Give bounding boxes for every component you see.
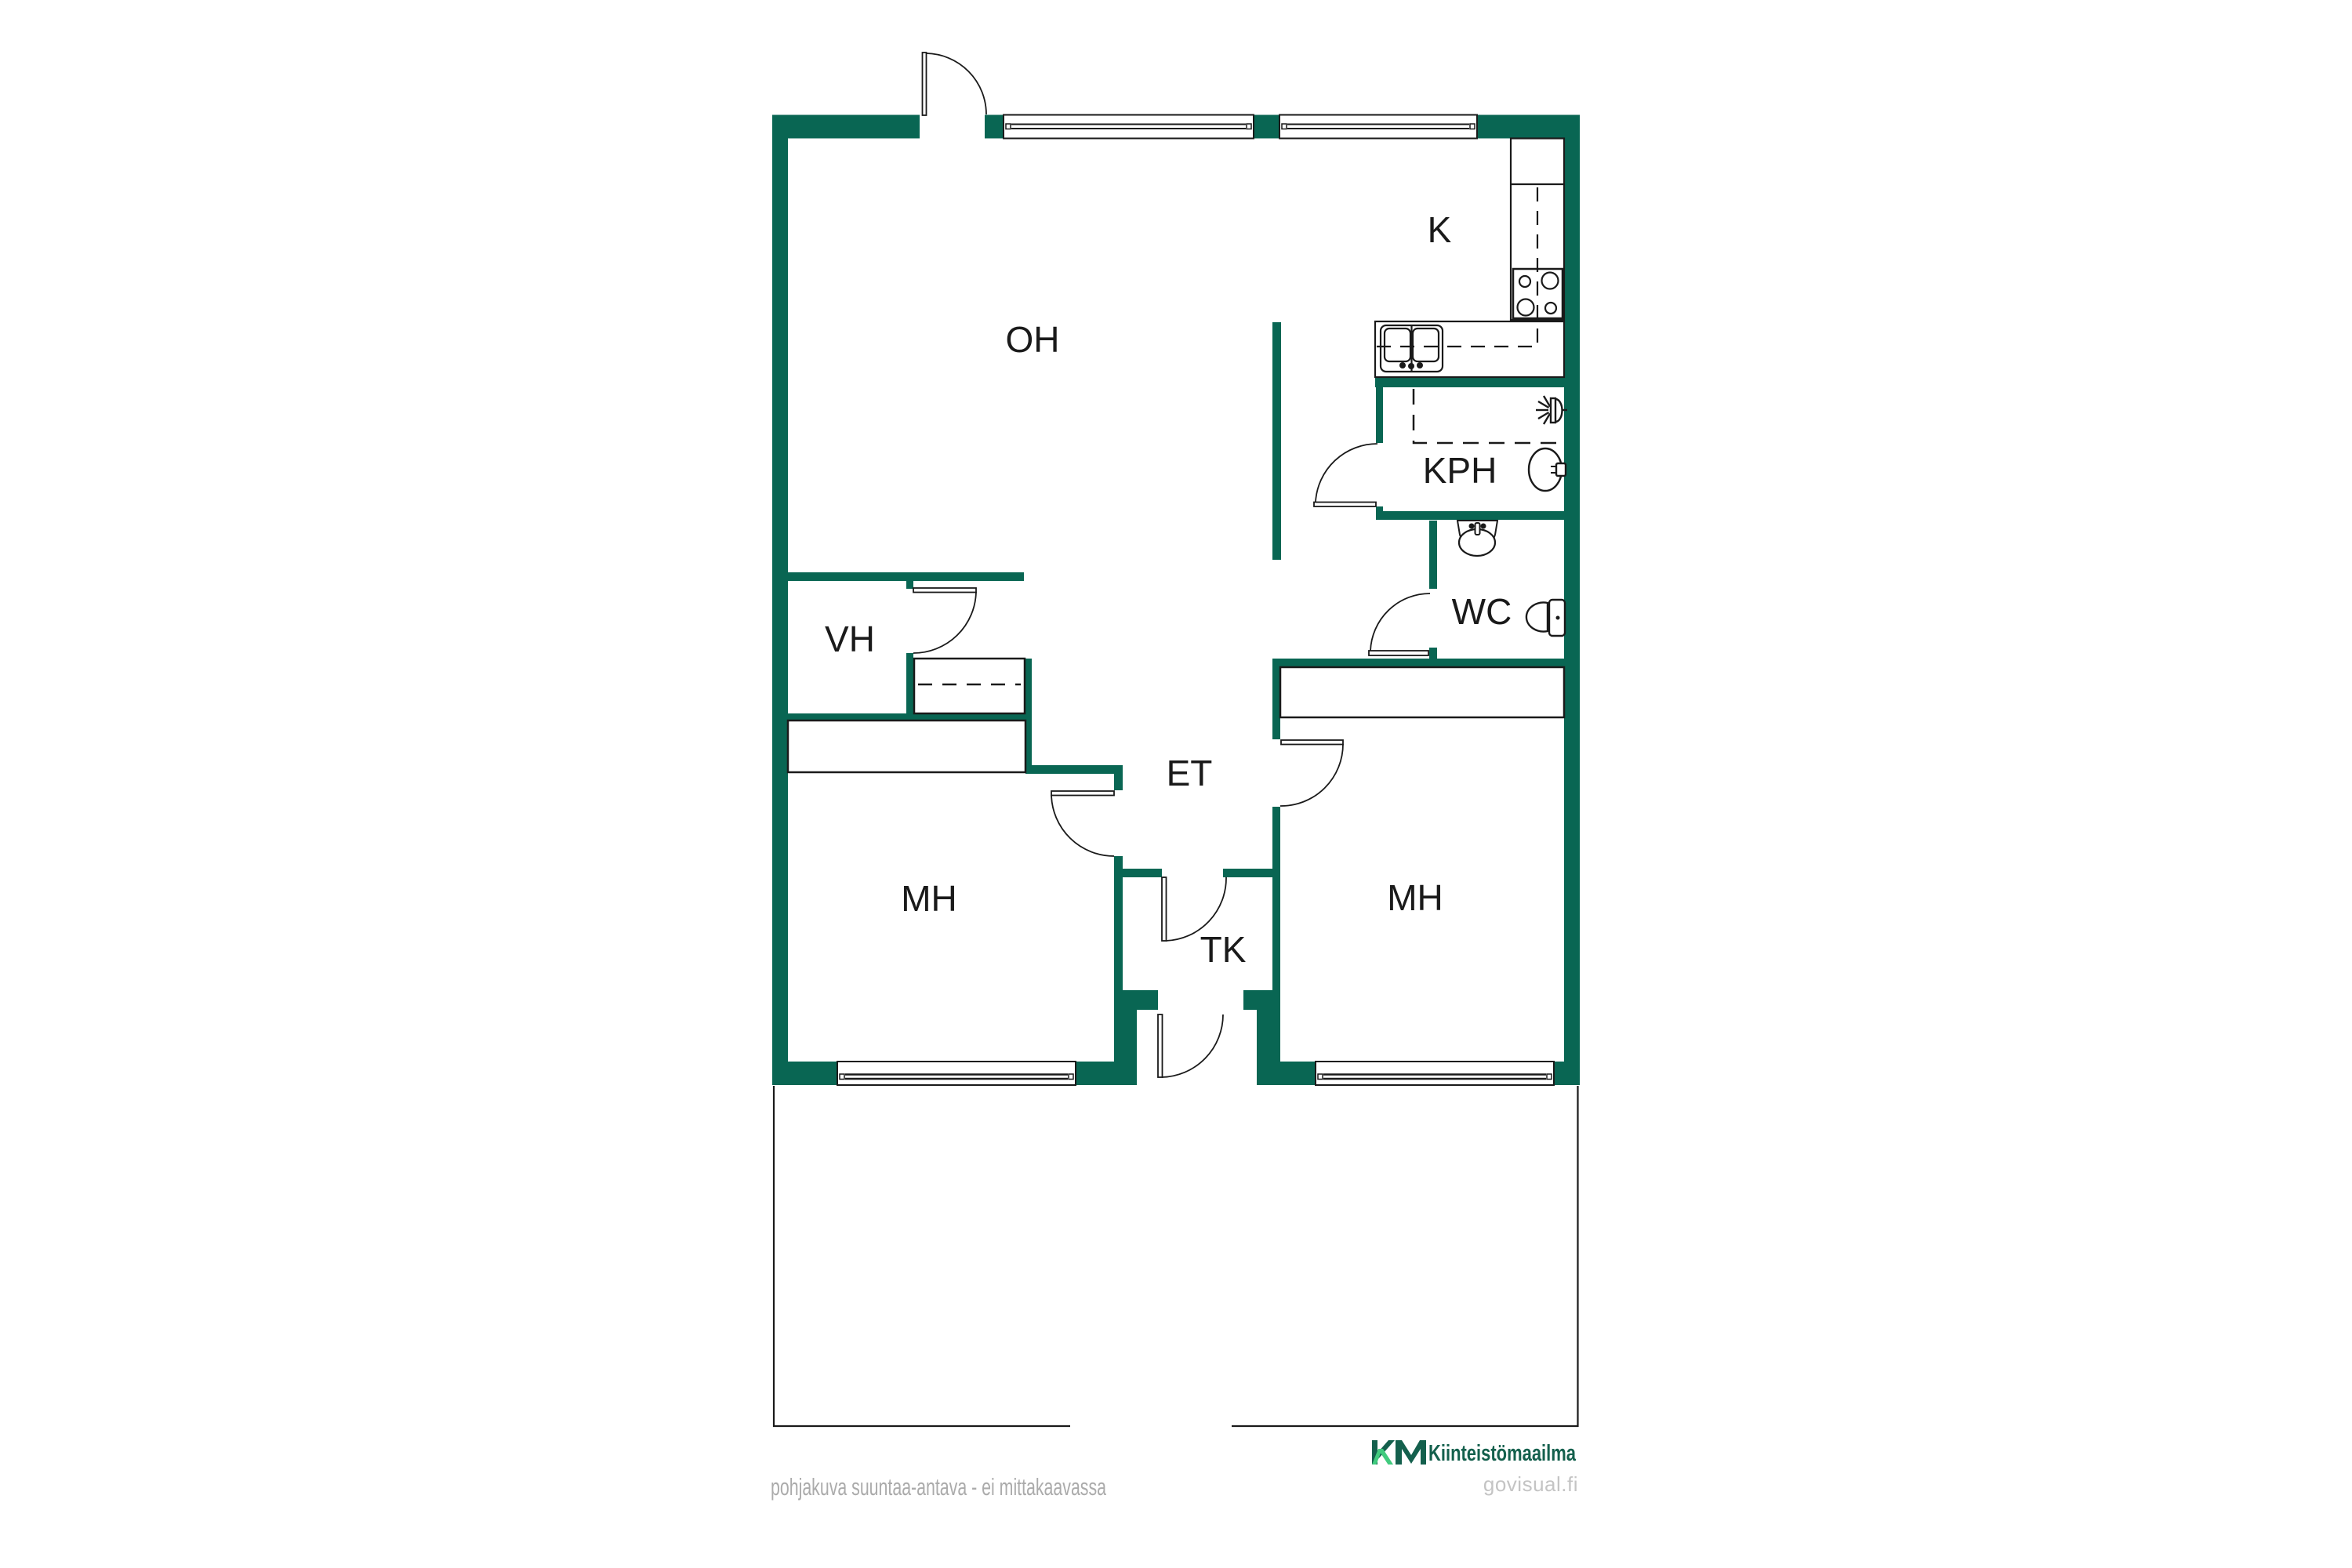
svg-text:TK: TK	[1200, 929, 1247, 970]
svg-text:govisual.fi: govisual.fi	[1483, 1472, 1578, 1496]
svg-text:OH: OH	[1006, 319, 1060, 360]
svg-text:Kiinteistömaailma: Kiinteistömaailma	[1428, 1441, 1577, 1466]
svg-text:ET: ET	[1167, 753, 1213, 793]
svg-text:MH: MH	[901, 878, 957, 919]
svg-text:WC: WC	[1452, 591, 1512, 632]
svg-text:VH: VH	[825, 619, 875, 659]
svg-text:pohjakuva suuntaa-antava - ei: pohjakuva suuntaa-antava - ei mittakaava…	[771, 1473, 1107, 1501]
svg-text:KPH: KPH	[1423, 450, 1497, 491]
svg-text:MH: MH	[1387, 877, 1443, 918]
svg-text:K: K	[1428, 209, 1452, 250]
